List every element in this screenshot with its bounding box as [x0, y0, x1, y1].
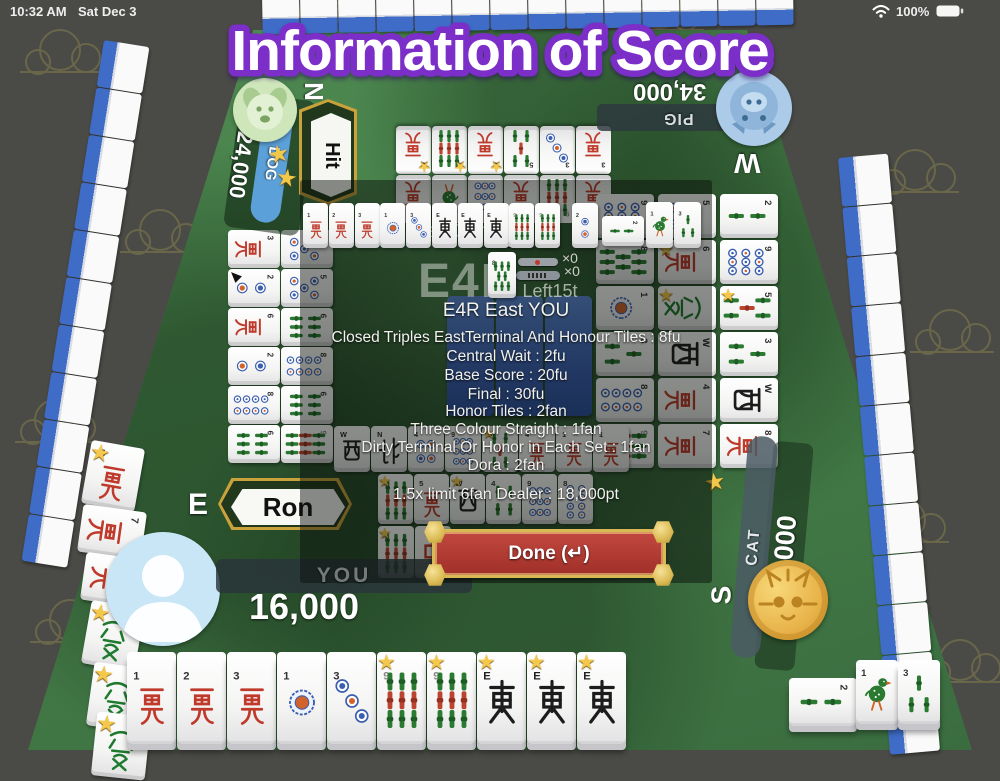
dora-star-icon: ★	[88, 440, 112, 466]
svg-text:6: 6	[265, 314, 274, 319]
wall-tile-back	[855, 353, 909, 406]
hundred-counter: ×0	[564, 263, 580, 279]
dora-star-icon: ★	[490, 159, 503, 174]
mahjong-tile-3man: 3	[576, 126, 611, 174]
tile-face-1sou: 1	[648, 205, 671, 245]
dora-star-icon: ★	[454, 159, 467, 174]
tile-face-9pin: 9	[722, 243, 776, 281]
tile-face-5sou: 5	[506, 129, 537, 171]
dora-star-icon: ★	[95, 711, 118, 736]
done-button[interactable]: Done (↵)	[432, 529, 666, 578]
mahjong-tile-9sou: 9 ★	[432, 126, 467, 174]
mahjong-tile-9sou: 9	[535, 203, 560, 248]
tile-face-2sou: 2	[604, 219, 642, 243]
tile-face-3pin: 3	[408, 206, 429, 245]
mahjong-tile-3sou: 3	[674, 202, 701, 248]
wall-tile-back	[860, 403, 914, 456]
mahjong-tile-3man[interactable]: 3	[227, 652, 276, 744]
wall-tile-back	[847, 253, 901, 306]
last-discard-arrow-icon	[230, 271, 243, 284]
wifi-icon	[872, 5, 890, 18]
tile-face-3man: 3	[230, 233, 278, 265]
south-seat-label-text: S	[705, 586, 737, 605]
tile-face-east: E	[486, 206, 507, 245]
svg-text:1: 1	[133, 670, 139, 682]
mahjong-tile-2sou: 2	[720, 194, 778, 238]
west-seat-label-text: W	[734, 147, 760, 179]
mahjong-tile-3man: 3	[355, 203, 380, 248]
svg-text:1: 1	[307, 213, 310, 219]
mahjong-tile-east: E	[484, 203, 509, 248]
tile-face-3man: 3	[229, 655, 274, 741]
mahjong-tile-2pin: 2	[572, 203, 598, 248]
svg-text:9: 9	[762, 246, 773, 251]
mahjong-tile-6sou: 6	[228, 425, 280, 463]
mahjong-tile-5man: 5 ★	[468, 126, 503, 174]
svg-text:3: 3	[602, 161, 606, 170]
wall-tile-back	[877, 602, 931, 655]
svg-text:3: 3	[678, 211, 681, 217]
tile-face-2pin: 2	[574, 206, 596, 245]
you-seat-label: E	[188, 488, 208, 522]
svg-text:5: 5	[762, 292, 773, 298]
svg-text:1: 1	[861, 668, 867, 679]
fan-line: Dirty Terminal Or Honor in Each Set : 1f…	[300, 439, 712, 457]
cat-avatar	[748, 560, 828, 640]
svg-text:3: 3	[566, 161, 570, 170]
svg-text:3: 3	[265, 236, 274, 241]
dora-star-icon: ★	[377, 652, 396, 673]
svg-text:Information of Score: Information of Score	[231, 19, 768, 83]
dora-star-icon: ★	[477, 652, 496, 673]
dora-star-icon: ★	[577, 652, 596, 673]
dora-star-icon: ★	[427, 652, 446, 673]
tile-face-3pin: 3	[542, 129, 573, 171]
mahjong-tile-3sou[interactable]: 3	[898, 660, 940, 724]
tile-face-9sou: 9	[511, 206, 532, 245]
tile-face-2man: 2	[331, 206, 352, 245]
tile-face-3sou: 3	[676, 205, 699, 245]
wall-tile-back	[864, 453, 918, 506]
fu-line: Base Score : 20fu	[300, 366, 712, 385]
tile-face-east: E	[434, 206, 455, 245]
mahjong-tile-5man: 5 ★	[81, 440, 145, 512]
tile-face-1man: 1	[305, 206, 326, 245]
svg-text:8: 8	[762, 430, 773, 435]
tile-face-6sou: 6	[230, 428, 278, 460]
tile-face-2man: 2	[179, 655, 224, 741]
tile-face-9sou: 9	[537, 206, 558, 245]
wall-tile-back	[873, 552, 927, 605]
tile-face-3pin: 3	[329, 655, 374, 741]
wall-tile-back	[29, 467, 82, 521]
status-time: 10:32 AM	[10, 4, 67, 19]
tile-face-1sou: 1	[858, 663, 896, 721]
dealer-star-icon: ★	[274, 163, 299, 195]
svg-text:2: 2	[631, 221, 637, 225]
svg-text:8: 8	[265, 392, 274, 397]
tile-face-1man: 1	[129, 655, 174, 741]
mahjong-tile-3sou: 3	[720, 332, 778, 376]
mahjong-tile-9sou[interactable]: 9 ★	[377, 652, 426, 744]
mahjong-tile-8pin: 8	[228, 386, 280, 424]
fu-line: Central Wait : 2fu	[300, 347, 712, 366]
svg-text:2: 2	[183, 670, 189, 682]
fan-breakdown: Honor Tiles : 2fanThree Colour Straight …	[300, 403, 712, 475]
svg-text:3: 3	[233, 670, 239, 682]
svg-text:2: 2	[333, 213, 336, 219]
status-date: Sat Dec 3	[78, 4, 137, 19]
mahjong-tile-2pin: 2	[228, 269, 280, 307]
dora-star-icon: ★	[92, 662, 116, 688]
mahjong-tile-1pin[interactable]: 1	[277, 652, 326, 744]
svg-text:2: 2	[265, 275, 274, 280]
mahjong-tile-east[interactable]: E★	[477, 652, 526, 744]
mahjong-tile-2sou: 2	[602, 216, 644, 246]
mahjong-tile-3man: 3	[228, 230, 280, 268]
tile-face-3man: 3	[578, 129, 609, 171]
mahjong-tile-2man: 2	[329, 203, 354, 248]
mahjong-tile-2sou[interactable]: 2	[789, 678, 857, 726]
wall-tile-back	[82, 135, 135, 189]
mahjong-tile-east: E	[432, 203, 457, 248]
cat-coin-icon	[748, 560, 828, 640]
mahjong-tile-east[interactable]: E★	[527, 652, 576, 744]
svg-text:1: 1	[283, 670, 289, 682]
south-seat-label: S	[706, 580, 736, 610]
tile-face-1pin: 1	[279, 655, 324, 741]
svg-text:E: E	[487, 213, 491, 219]
tile-face-2sou: 2	[791, 681, 855, 723]
mahjong-tile-1sou: 1	[646, 202, 673, 248]
svg-text:E: E	[462, 213, 466, 219]
wall-tile-back	[44, 372, 97, 426]
fu-line: Final : 30fu	[300, 385, 712, 404]
wall-tile-back	[67, 230, 120, 284]
you-player-score: 16,000	[214, 586, 394, 628]
wall-tile-back	[89, 87, 142, 141]
wall-tile-back	[851, 303, 905, 356]
svg-text:3: 3	[903, 668, 908, 679]
dora-star-icon: ★	[418, 159, 431, 174]
west-player-name-text: PIG	[663, 109, 694, 127]
tile-face-6man: 6	[230, 311, 278, 343]
tile-face-2pin: 2	[230, 350, 278, 382]
svg-text:1: 1	[650, 211, 654, 217]
mahjong-tile-3pin: 3	[540, 126, 575, 174]
svg-text:2: 2	[762, 200, 773, 205]
riichi-stick-icon	[518, 258, 558, 266]
mahjong-tile-6man: 6	[228, 308, 280, 346]
mahjong-tile-5sou: 5 ★	[720, 286, 778, 330]
wall-tile-back	[869, 502, 923, 555]
wall-tile-back	[842, 203, 896, 256]
mahjong-tile-2man[interactable]: 2	[177, 652, 226, 744]
tile-face-2sou: 2	[722, 197, 776, 235]
mahjong-tile-8sou: 8	[488, 252, 516, 298]
tile-face-1pin: 1	[382, 206, 403, 245]
fan-line: Three Colour Straight : 1fan	[300, 421, 712, 439]
dora-star-icon: ★	[720, 286, 736, 304]
svg-text:2: 2	[576, 212, 579, 218]
svg-text:7: 7	[128, 517, 141, 525]
mahjong-tile-1sou[interactable]: 1	[856, 660, 898, 724]
mahjong-tile-2pin: 2	[228, 347, 280, 385]
mahjong-tile-9pin: 9	[720, 240, 778, 284]
tile-face-3sou: 3	[722, 335, 776, 373]
tile-face-8pin: 8	[230, 389, 278, 421]
svg-text:2: 2	[265, 353, 274, 358]
fu-line: Closed Triples EastTerminal And Honour T…	[300, 328, 712, 347]
wall-tile-back	[52, 324, 105, 378]
fu-breakdown: Closed Triples EastTerminal And Honour T…	[300, 328, 712, 404]
winner-line: E4R East YOU	[300, 300, 712, 322]
svg-text:3: 3	[358, 213, 361, 219]
mahjong-tile-1pin: 1	[380, 203, 405, 248]
wall-tile-back	[74, 182, 127, 236]
tile-face-west: W	[722, 381, 776, 419]
tile-face-8sou: 8	[490, 255, 514, 295]
svg-text:1: 1	[384, 213, 387, 219]
west-seat-label: W	[732, 148, 762, 178]
hit-banner-label: Hit	[319, 142, 342, 169]
tile-face-east: E	[460, 206, 481, 245]
page-title: Information of Score	[0, 18, 1000, 90]
mahjong-tile-9sou: 9	[509, 203, 534, 248]
mahjong-tile-1man[interactable]: 1	[127, 652, 176, 744]
mahjong-tile-west: W	[720, 378, 778, 422]
wall-tile-back	[22, 514, 75, 568]
done-button-label: Done (↵)	[508, 542, 589, 565]
battery-percent: 100%	[896, 4, 929, 19]
mahjong-tile-9man: 9 ★	[396, 126, 431, 174]
battery-icon	[936, 5, 964, 17]
svg-text:W: W	[762, 384, 773, 393]
mahjong-tile-9sou[interactable]: 9 ★	[427, 652, 476, 744]
wall-tile-back	[59, 277, 112, 331]
person-icon	[106, 532, 220, 646]
tile-face-3man: 3	[357, 206, 378, 245]
svg-text:2: 2	[838, 685, 850, 691]
mahjong-tile-east: E	[458, 203, 483, 248]
svg-text:3: 3	[762, 338, 773, 343]
mahjong-tile-5sou: 5	[504, 126, 539, 174]
you-avatar	[106, 532, 220, 646]
hundred-stick-icon	[516, 271, 560, 280]
mahjong-tile-1man: 1	[303, 203, 328, 248]
svg-text:5: 5	[530, 161, 534, 170]
wall-tile-back	[838, 154, 892, 207]
svg-text:E: E	[436, 213, 440, 219]
mahjong-tile-3pin[interactable]: 3	[327, 652, 376, 744]
tile-face-3sou: 3	[900, 663, 938, 721]
result-line: 1.5x limit 6fan Dealer : 18,000pt	[300, 486, 712, 504]
fan-line: Dora : 2fan	[300, 457, 712, 475]
wall-tile-back	[37, 419, 90, 473]
dora-star-icon: ★	[527, 652, 546, 673]
mahjong-tile-3pin: 3	[406, 203, 431, 248]
fan-line: Honor Tiles : 2fan	[300, 403, 712, 421]
status-bar: 10:32 AM Sat Dec 3 100%	[0, 0, 1000, 22]
mahjong-tile-east[interactable]: E★	[577, 652, 626, 744]
